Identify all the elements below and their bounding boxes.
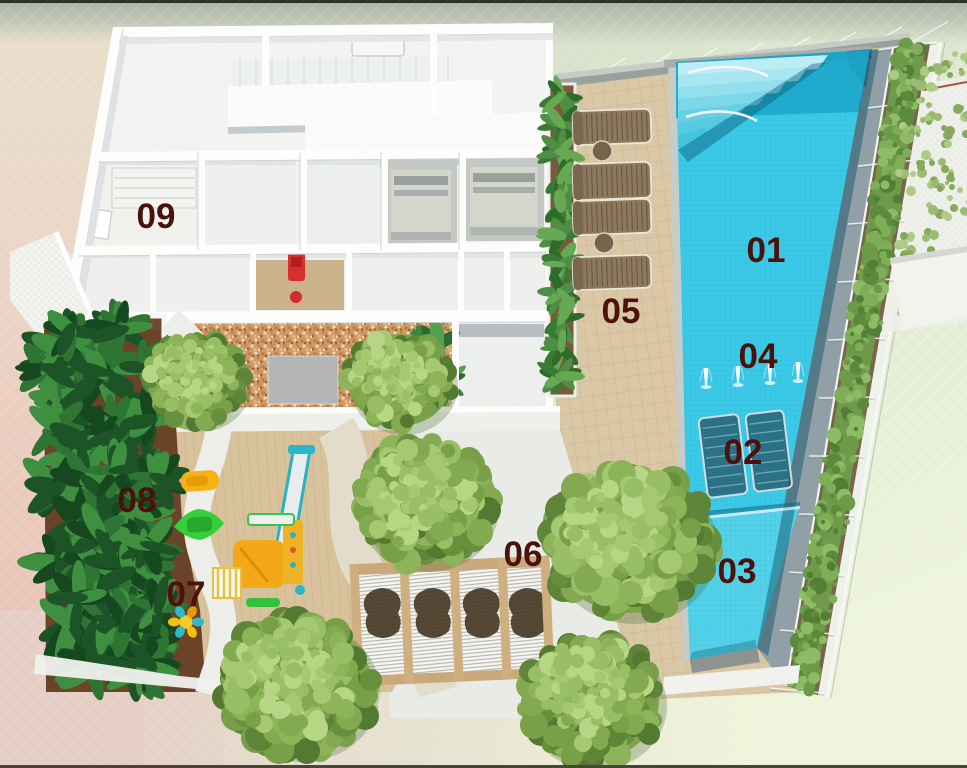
svg-text:04: 04 <box>739 337 778 376</box>
svg-text:03: 03 <box>718 552 757 591</box>
svg-text:09: 09 <box>137 197 176 236</box>
svg-text:02: 02 <box>724 433 763 472</box>
svg-text:06: 06 <box>504 535 543 574</box>
svg-text:08: 08 <box>118 481 157 520</box>
svg-text:07: 07 <box>167 575 206 614</box>
svg-text:05: 05 <box>602 292 641 331</box>
svg-text:01: 01 <box>747 231 786 270</box>
